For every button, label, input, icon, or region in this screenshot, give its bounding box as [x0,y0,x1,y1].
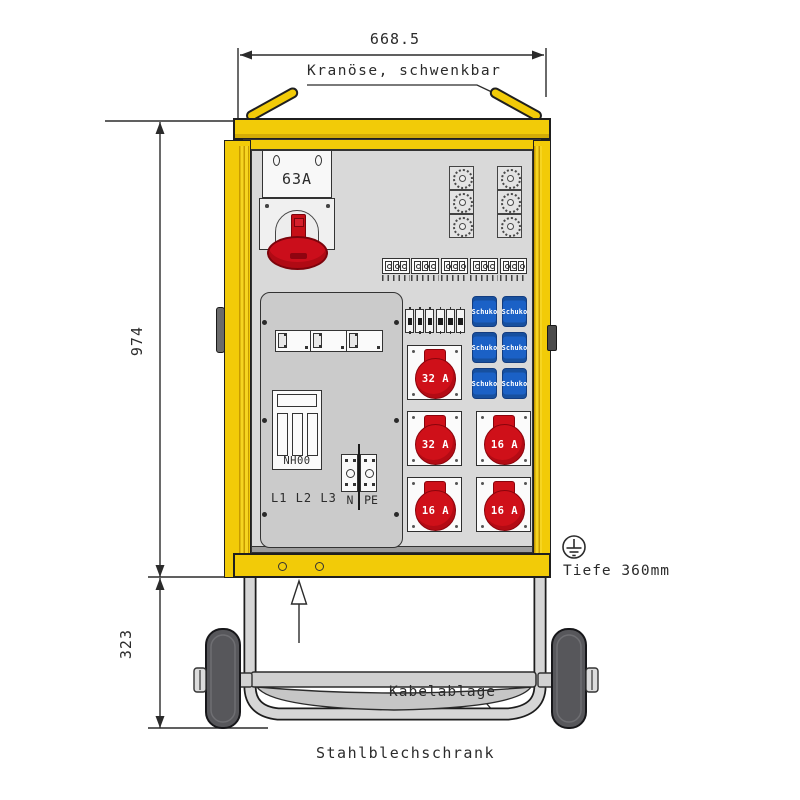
schuko-socket: Schuko [472,368,497,399]
cee-socket-label: 32 A [422,439,449,451]
earth-icon [563,536,585,558]
crane-label: Kranöse, schwenkbar [307,63,501,79]
pe-label: PE [362,493,380,507]
door-screw [262,512,267,517]
cabinet-type-label: Stahlblechschrank [316,744,495,762]
cee-socket-label: 16 A [422,505,449,517]
crane-leader-line [307,85,496,94]
cee-socket-label: 16 A [491,505,518,517]
cee-socket-label: 16 A [491,439,518,451]
terminal-block-group [441,258,469,281]
schuko-label: Schuko [502,308,528,316]
schuko-label: Schuko [472,344,498,352]
cee-socket-16a: 16 A [476,411,531,466]
cable-gland [497,190,522,214]
wheel-right [552,629,586,728]
neutral-terminal [341,454,358,492]
cable-gland [449,214,474,238]
mcb [446,309,455,333]
terminal-block-strip [382,258,529,281]
schuko-socket: Schuko [502,332,527,363]
fuse-section [311,331,346,351]
cable-gland [449,166,474,190]
schuko-label: Schuko [502,380,528,388]
fuse-section [276,331,311,351]
screw [265,204,269,208]
mcb [436,309,445,333]
dimension-height-label: 974 [128,326,146,356]
fuse-section [347,331,382,351]
main-breaker-63a: 63A [262,150,332,198]
door-screw [262,320,267,325]
neutral-label: N [343,493,357,507]
inlet-red-cap [267,236,328,270]
schuko-socket: Schuko [502,296,527,327]
main-breaker-label: 63A [263,170,331,188]
phases-label: L1 L2 L3 [271,491,337,505]
terminal-block-group [382,258,410,281]
schuko-socket: Schuko [502,368,527,399]
nh00-fuse-bar [277,413,288,456]
schuko-label: Schuko [502,344,528,352]
cable-gland [497,214,522,238]
base-hole [278,562,287,571]
mcb-row [405,309,465,333]
screw [326,204,330,208]
cee-socket-label: 32 A [422,373,449,385]
terminal-block-group [470,258,498,281]
mcb [415,309,424,333]
fuse-terminal-strip [275,330,383,352]
frame-left-profile [239,146,249,570]
cabinet-base-bar [233,553,551,578]
n-pe-divider-line [358,444,360,510]
schuko-label: Schuko [472,308,498,316]
cabinet-roof [233,118,551,140]
cable-gland [449,190,474,214]
door-screw [262,418,267,423]
mcb [405,309,414,333]
distribution-cabinet-drawing: 63A [0,0,800,800]
depth-label: Tiefe 360mm [563,563,670,579]
cable-gland [497,166,522,190]
dimension-base-label: 323 [117,629,135,659]
nh00-fuse-bar [307,413,318,456]
door-screw [394,418,399,423]
screw-slot [273,155,280,166]
terminal-block-group [500,258,528,281]
door-screw [394,512,399,517]
cee-socket-16a: 16 A [476,477,531,532]
nh00-fuse-bar [292,413,303,456]
nh00-label: NH00 [273,455,321,467]
schuko-socket: Schuko [472,296,497,327]
mcb [456,309,465,333]
cabinet-roof-lip [243,139,541,150]
door-screw [394,320,399,325]
cee-inlet-63a [259,198,335,250]
wheel-left [206,629,240,728]
pe-terminal [360,454,377,492]
terminal-block-group [411,258,439,281]
nh00-fuse-switch: NH00 [272,390,322,470]
cee-socket-32a: 32 A [407,345,462,400]
cable-tray-label: Kabelablage [389,684,496,700]
frame-right-profile [534,146,542,570]
base-hole [315,562,324,571]
door-latch-right [547,325,557,351]
schuko-label: Schuko [472,380,498,388]
cee-socket-16a: 16 A [407,477,462,532]
nh00-lid [277,394,317,407]
up-arrow [292,581,307,643]
dimension-width-label: 668.5 [360,30,430,48]
screw-slot [315,155,322,166]
schuko-socket: Schuko [472,332,497,363]
cee-socket-32a: 32 A [407,411,462,466]
mcb [425,309,434,333]
